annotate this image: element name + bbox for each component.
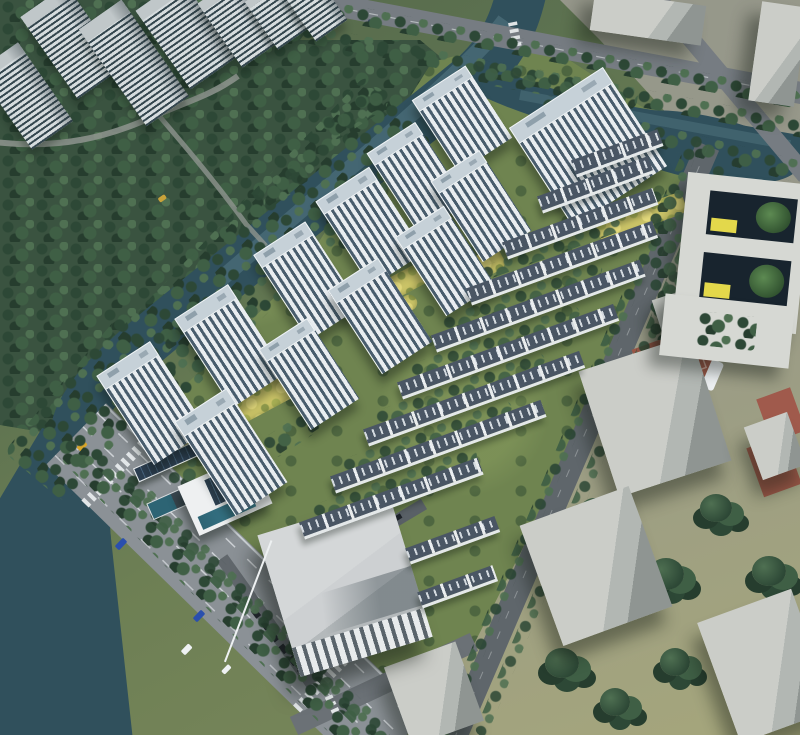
car-white-1 bbox=[181, 643, 193, 655]
tree-grove-4 bbox=[700, 494, 732, 522]
car-white-2 bbox=[221, 664, 232, 675]
courtyard-yellow-accent bbox=[703, 282, 731, 299]
courtyard-green-accent bbox=[754, 201, 792, 235]
tree-grove-1 bbox=[545, 648, 579, 678]
courtyard-yellow-accent bbox=[710, 218, 738, 234]
car-forest-road bbox=[158, 194, 167, 203]
tree-grove-7 bbox=[660, 648, 690, 676]
annex-courtyard-trees bbox=[694, 311, 757, 351]
courtyard-green-accent bbox=[747, 263, 786, 300]
tree-grove-2 bbox=[600, 688, 630, 716]
tree-grove-5 bbox=[752, 556, 786, 586]
school-courtyard-1 bbox=[706, 190, 798, 243]
aerial-rendering-scene: Aerial rendering of a riverside resident… bbox=[0, 0, 800, 735]
